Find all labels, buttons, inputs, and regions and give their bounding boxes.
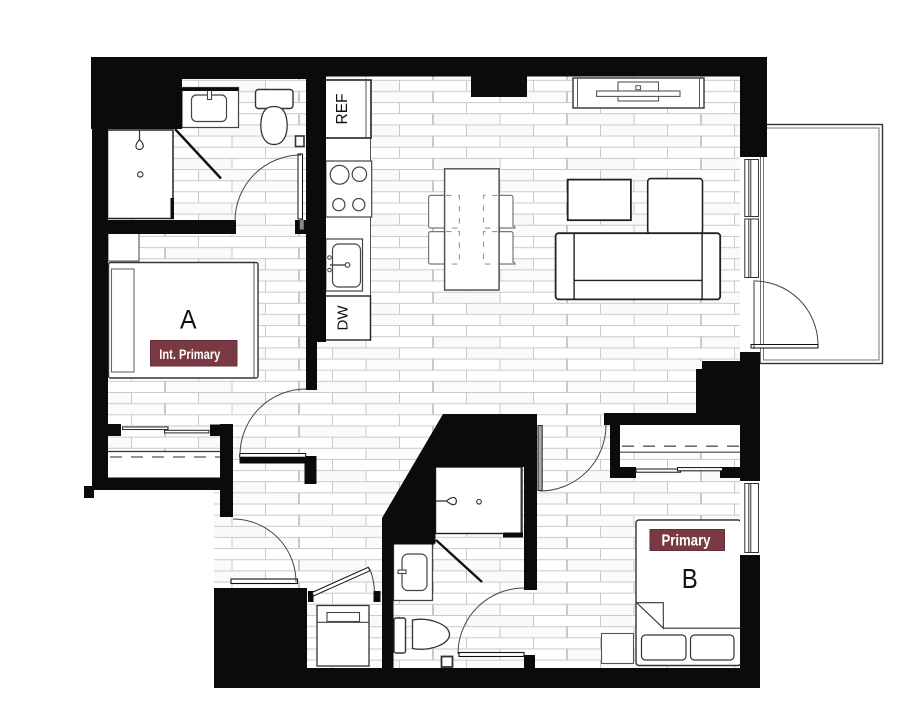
svg-text:B: B	[682, 563, 698, 594]
svg-text:REF: REF	[334, 94, 351, 125]
svg-text:DW: DW	[335, 305, 352, 331]
svg-text:Int. Primary: Int. Primary	[159, 346, 220, 362]
svg-text:A: A	[180, 305, 197, 335]
svg-text:Primary: Primary	[662, 532, 711, 549]
